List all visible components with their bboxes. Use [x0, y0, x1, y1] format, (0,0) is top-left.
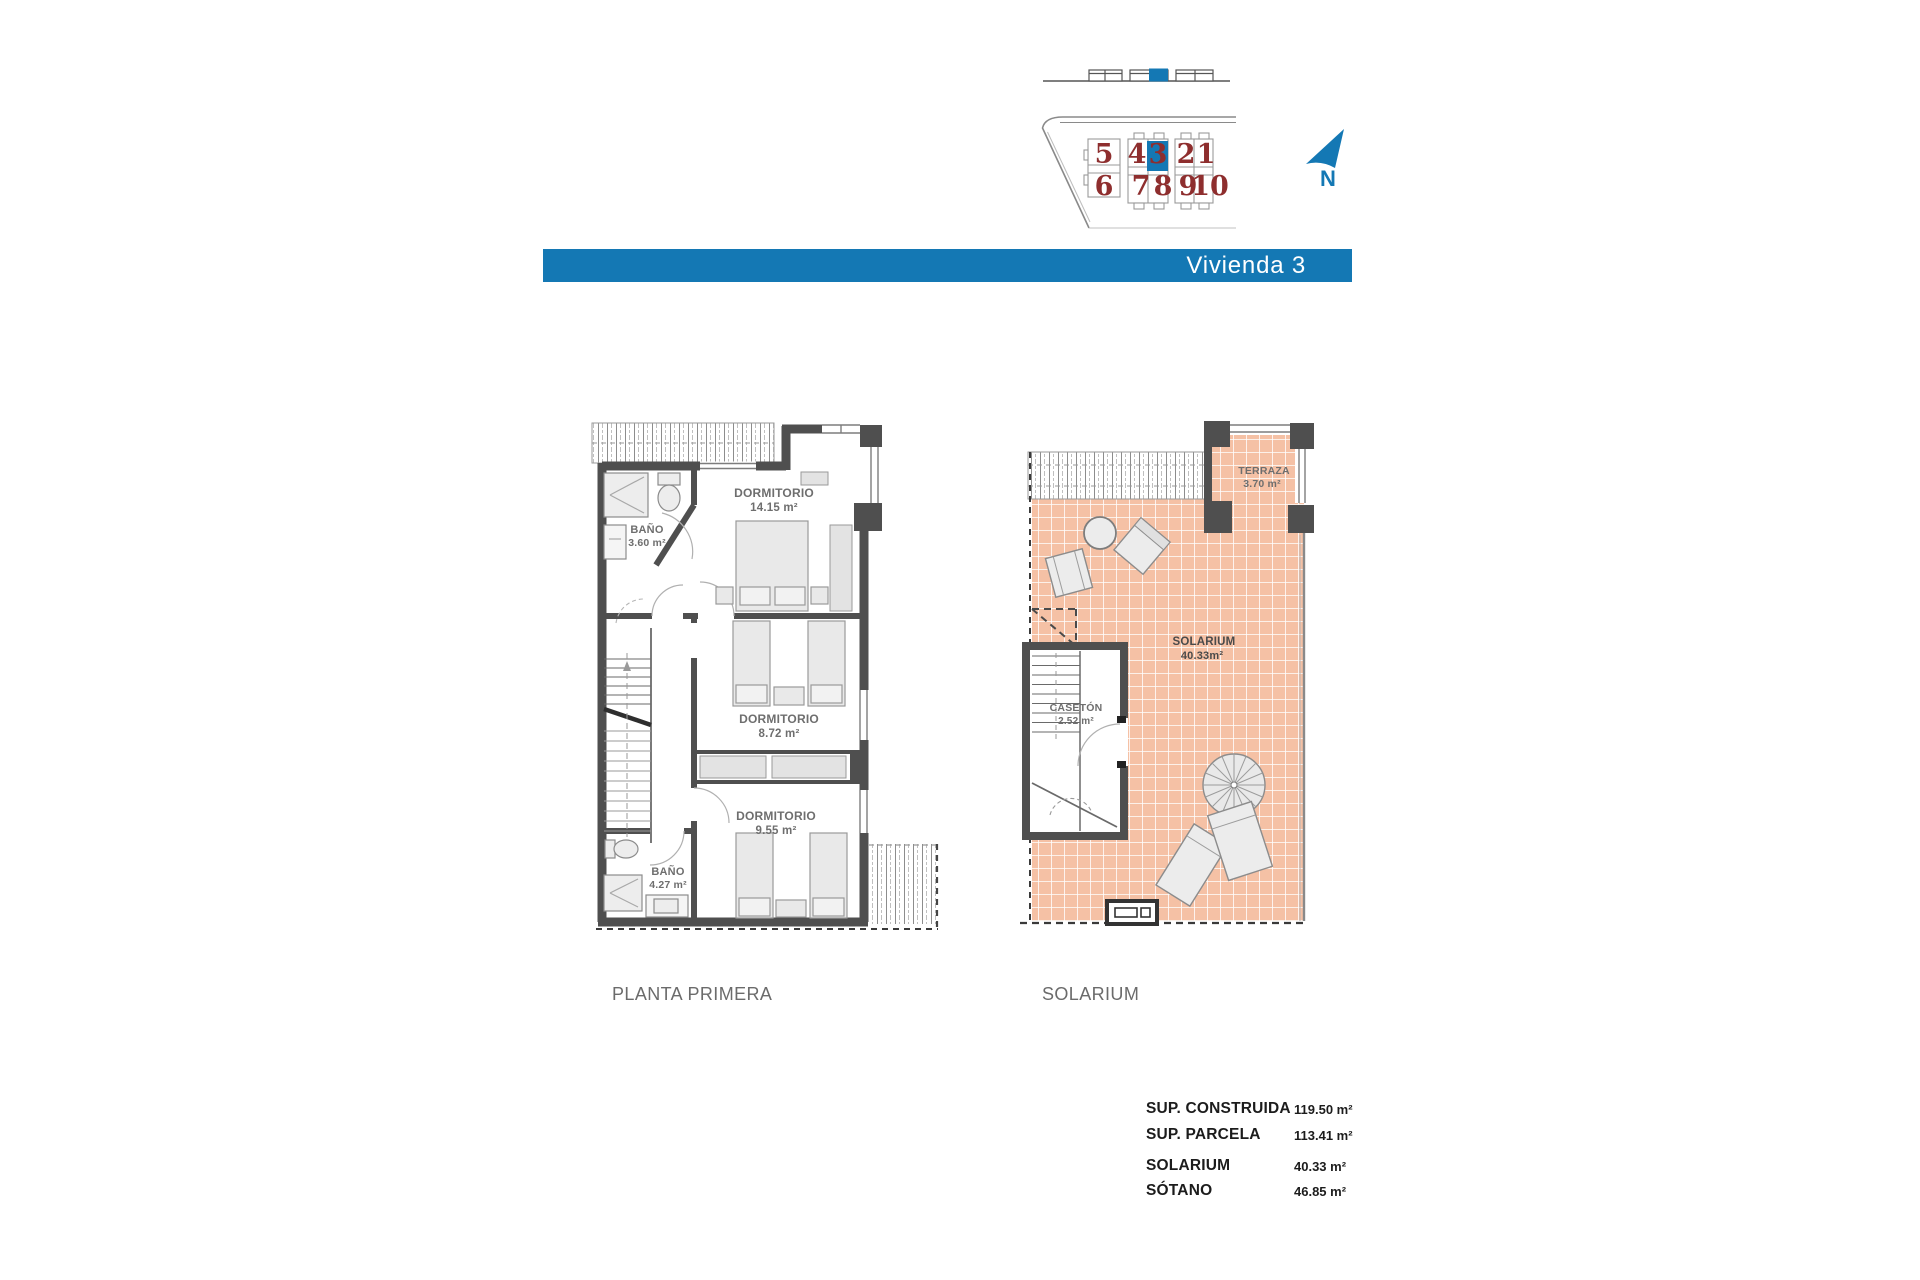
vent-box: [1107, 901, 1157, 924]
summary-value: 40.33 m²: [1294, 1159, 1346, 1174]
room-label: TERRAZA: [1238, 465, 1290, 477]
plan-name-planta-primera: PLANTA PRIMERA: [612, 984, 772, 1005]
unit-number: 2: [1177, 139, 1196, 170]
stairs: [604, 599, 651, 843]
summary-label: SOLARIUM: [1146, 1157, 1230, 1175]
room-label: BAÑO: [651, 865, 684, 878]
room-label: DORMITORIO: [736, 809, 816, 823]
room-area: 8.72 m²: [758, 728, 799, 740]
title-bar: Vivienda 3: [543, 249, 1352, 282]
summary-label: SUP. PARCELA: [1146, 1126, 1261, 1144]
summary-row: SUP. CONSTRUIDA 119.50 m²: [1146, 1100, 1416, 1122]
wall-chunk: [850, 754, 864, 780]
summary-value: 46.85 m²: [1294, 1184, 1346, 1199]
summary-label: SÓTANO: [1146, 1182, 1212, 1200]
floor-plan-planta-primera: BAÑO 3.60 m² DORMITORIO 14.15 m² DORMITO…: [588, 413, 953, 958]
caseton-door-gap: [1116, 718, 1128, 766]
summary-value: 113.41 m²: [1294, 1128, 1353, 1143]
unit-number: 10: [1191, 171, 1229, 202]
room-label: SOLARIUM: [1173, 636, 1236, 648]
room-label: DORMITORIO: [734, 486, 814, 500]
summary-row: SUP. PARCELA 113.41 m²: [1146, 1126, 1416, 1148]
room-area: 3.60 m²: [628, 537, 666, 549]
plan-name-solarium: SOLARIUM: [1042, 984, 1139, 1005]
elevation-strip: [1043, 69, 1230, 82]
summary-row: SÓTANO 46.85 m²: [1146, 1182, 1416, 1204]
unit-number-highlighted: 3: [1149, 139, 1168, 170]
round-table: [1084, 517, 1116, 549]
unit-number: 4: [1128, 139, 1147, 170]
room-area: 9.55 m²: [755, 825, 796, 837]
summary-value: 119.50 m²: [1294, 1102, 1353, 1117]
unit-number: 1: [1197, 139, 1216, 170]
room-area: 2.52 m²: [1058, 716, 1094, 727]
corner-pillar: [860, 425, 882, 447]
roof-hatch: [592, 423, 774, 463]
unit-number: 8: [1154, 171, 1173, 202]
summary-row: SOLARIUM 40.33 m²: [1146, 1157, 1416, 1179]
room-label: DORMITORIO: [739, 712, 819, 726]
room-label: BAÑO: [630, 523, 663, 536]
elevation-highlight: [1149, 69, 1168, 82]
page-title: Vivienda 3: [1186, 249, 1306, 282]
north-label: N: [1320, 166, 1336, 190]
beds-twin-top: [733, 621, 845, 706]
caseton: [1026, 646, 1128, 836]
unit-number: 6: [1095, 171, 1114, 202]
summary-label: SUP. CONSTRUIDA: [1146, 1100, 1291, 1118]
bed-double: [716, 521, 828, 611]
corner-pillar: [854, 503, 882, 531]
room-area: 14.15 m²: [750, 502, 798, 514]
floor-plan-solarium: TERRAZA 3.70 m² SOLARIUM 40.33m² CASETÓN…: [1012, 413, 1352, 958]
pergola-hatch: [1028, 452, 1208, 499]
unit-number: 7: [1132, 171, 1151, 202]
room-area: 40.33m²: [1181, 650, 1224, 662]
unit-number: 5: [1095, 139, 1114, 170]
room-area: 4.27 m²: [649, 879, 687, 891]
terrace-hatch: [869, 844, 937, 927]
room-area: 3.70 m²: [1243, 478, 1281, 490]
room-label: CASETÓN: [1050, 701, 1103, 714]
north-arrow-icon: N: [1302, 126, 1352, 190]
surface-summary: SUP. CONSTRUIDA 119.50 m² SUP. PARCELA 1…: [1146, 1100, 1416, 1210]
beds-twin-bottom: [736, 833, 847, 918]
